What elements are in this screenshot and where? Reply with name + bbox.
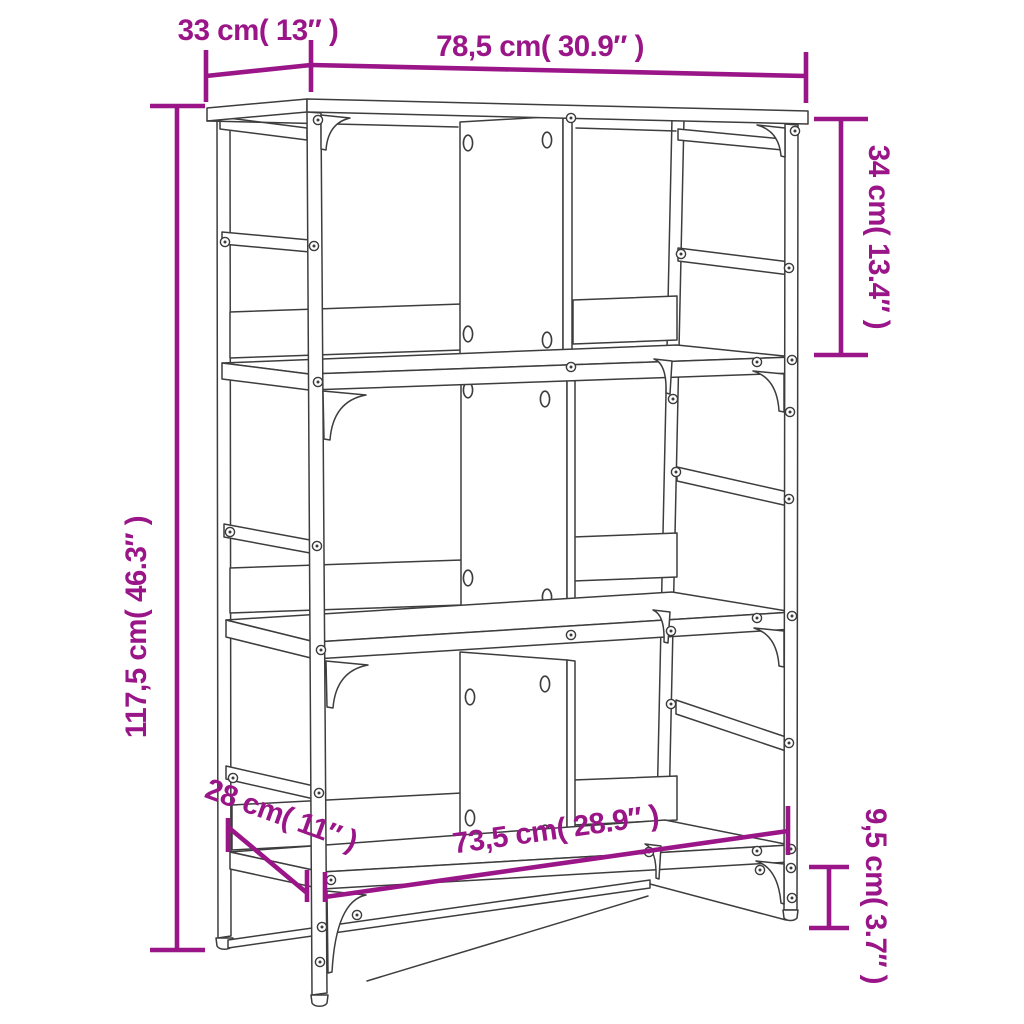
back-right-leg	[656, 118, 684, 858]
dim-line	[814, 119, 868, 355]
divider-tier-1	[460, 116, 572, 366]
dim-ground-clearance: 9,5 cm( 3.7″ )	[809, 808, 892, 984]
dim-total-height-label: 117,5 cm( 46.3″ )	[120, 516, 153, 738]
dim-line	[809, 867, 849, 928]
dim-top-width-label: 78,5 cm( 30.9″ )	[436, 30, 644, 63]
dim-top-depth-label: 33 cm( 13″ )	[178, 14, 339, 47]
dim-total-height: 117,5 cm( 46.3″ )	[120, 106, 205, 950]
dim-tier-height: 34 cm( 13.4″ )	[814, 119, 895, 355]
dim-top-depth: 33 cm( 13″ )	[178, 14, 339, 102]
left-side-rails	[220, 117, 314, 799]
diagram-canvas: 33 cm( 13″ ) 78,5 cm( 30.9″ ) 34 cm( 13.…	[0, 0, 1024, 1024]
dim-line	[206, 40, 311, 102]
front-right-leg	[783, 124, 798, 921]
dim-ground-clearance-label: 9,5 cm( 3.7″ )	[859, 808, 892, 984]
dim-line	[150, 106, 205, 950]
right-side-rails	[676, 129, 793, 751]
divider-tier-2	[461, 374, 575, 622]
dim-top-width: 78,5 cm( 30.9″ )	[311, 30, 806, 103]
dim-tier-height-label: 34 cm( 13.4″ )	[862, 145, 895, 329]
product-dimension-diagram: 33 cm( 13″ ) 78,5 cm( 30.9″ ) 34 cm( 13.…	[0, 0, 1024, 1024]
